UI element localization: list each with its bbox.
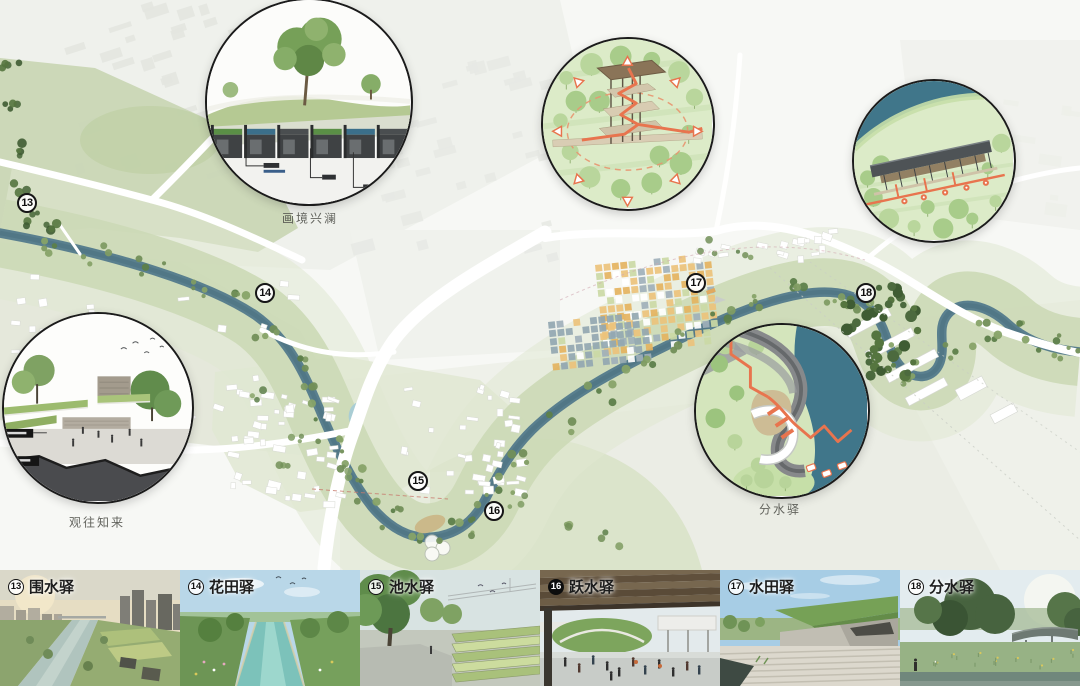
station-number-badge: 13	[8, 579, 24, 595]
station-number-badge: 17	[728, 579, 744, 595]
wetland-meadow	[900, 642, 1080, 672]
canopy-pavilion	[658, 616, 716, 630]
map-marker-16: 16	[484, 501, 504, 521]
station-number-badge: 16	[548, 579, 564, 595]
callout-huajing-xinglan	[205, 0, 413, 206]
thumbnail-fenshui-station: 18 分水驿	[900, 570, 1080, 686]
station-label: 16 跃水驿	[548, 576, 614, 597]
map-marker-17: 17	[686, 273, 706, 293]
thumbnail-shuitian-station: 17 水田驿	[720, 570, 900, 686]
station-name: 围水驿	[29, 576, 74, 597]
green-mound	[552, 618, 652, 654]
terraced-planters	[452, 626, 540, 682]
map-marker-13: 13	[17, 193, 37, 213]
caption-fenshui-station: 分水驿	[759, 501, 801, 518]
map-marker-14: 14	[255, 283, 275, 303]
column	[544, 608, 552, 686]
render-fenshui-plan	[696, 325, 867, 496]
station-label: 17 水田驿	[728, 576, 794, 597]
thumbnail-huatian-station: 14 花田驿	[180, 570, 360, 686]
map-marker-18: 18	[856, 283, 876, 303]
station-name: 水田驿	[749, 576, 794, 597]
station-number-badge: 14	[188, 579, 204, 595]
station-number-badge: 15	[368, 579, 384, 595]
render-pavilion-axon	[854, 81, 1013, 240]
callout-tower-diagram	[541, 37, 715, 211]
station-name: 花田驿	[209, 576, 254, 597]
thumbnail-chishui-station: 15 池水驿	[360, 570, 540, 686]
render-cutaway-gallery	[207, 0, 410, 203]
presentation-board: 13 14 15 16 17 18 画境兴澜 观往知来 分水驿	[0, 0, 1080, 686]
render-green-roof-plaza	[4, 314, 191, 501]
station-legend-strip: 13 围水驿	[0, 570, 1080, 686]
station-label: 18 分水驿	[908, 576, 974, 597]
callout-fenshui-diagram	[694, 323, 870, 499]
caption-huajing-xinglan: 画境兴澜	[282, 210, 338, 227]
station-name: 池水驿	[389, 576, 434, 597]
station-label: 13 围水驿	[8, 576, 74, 597]
station-number-badge: 18	[908, 579, 924, 595]
callout-pavilion-diagram	[852, 79, 1016, 243]
map-marker-15: 15	[408, 471, 428, 491]
station-name: 分水驿	[929, 576, 974, 597]
thumbnail-yueshui-station: 16 跃水驿	[540, 570, 720, 686]
thumbnail-weishui-station: 13 围水驿	[0, 570, 180, 686]
station-label: 14 花田驿	[188, 576, 254, 597]
render-tower-axon	[543, 39, 712, 208]
water-strip	[900, 672, 1080, 681]
callout-guanwang-zhilai	[2, 312, 194, 504]
station-name: 跃水驿	[569, 576, 614, 597]
caption-guanwang-zhilai: 观往知来	[69, 514, 125, 531]
station-label: 15 池水驿	[368, 576, 434, 597]
